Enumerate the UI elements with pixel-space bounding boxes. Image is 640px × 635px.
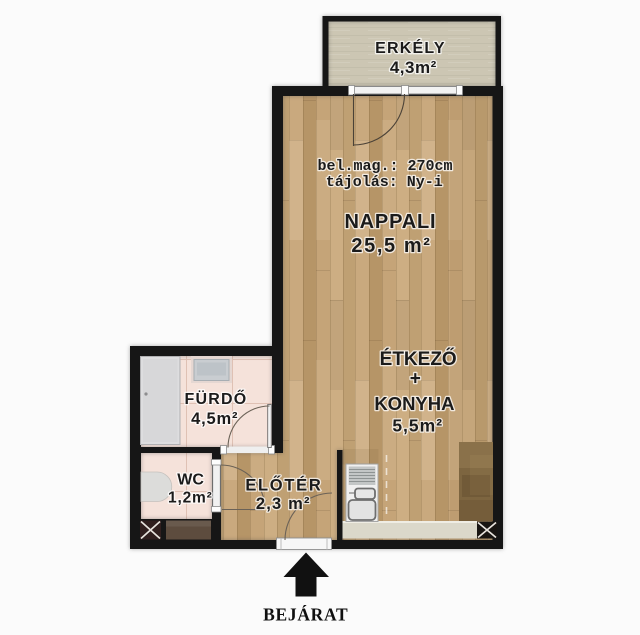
svg-text:NAPPALI: NAPPALI [344, 211, 436, 233]
svg-text:1,2m²: 1,2m² [168, 490, 213, 507]
svg-text:ERKÉLY: ERKÉLY [375, 38, 446, 57]
svg-text:4,3m²: 4,3m² [390, 58, 437, 77]
svg-text:KONYHA: KONYHA [374, 393, 454, 414]
svg-text:FÜRDŐ: FÜRDŐ [185, 389, 248, 408]
svg-text:ELŐTÉR: ELŐTÉR [245, 476, 322, 495]
svg-text:4,5m²: 4,5m² [191, 410, 238, 428]
svg-text:25,5 m²: 25,5 m² [351, 235, 431, 257]
svg-text:tájolás: Ny-i: tájolás: Ny-i [326, 174, 443, 191]
svg-text:bel.mag.: 270cm: bel.mag.: 270cm [317, 158, 452, 175]
svg-text:5,5m²: 5,5m² [392, 416, 443, 436]
svg-text:2,3 m²: 2,3 m² [256, 495, 311, 513]
svg-text:+: + [410, 369, 421, 390]
svg-text:ÉTKEZŐ: ÉTKEZŐ [380, 348, 457, 370]
svg-text:WC: WC [177, 472, 204, 489]
svg-text:BEJÁRAT: BEJÁRAT [263, 605, 348, 625]
